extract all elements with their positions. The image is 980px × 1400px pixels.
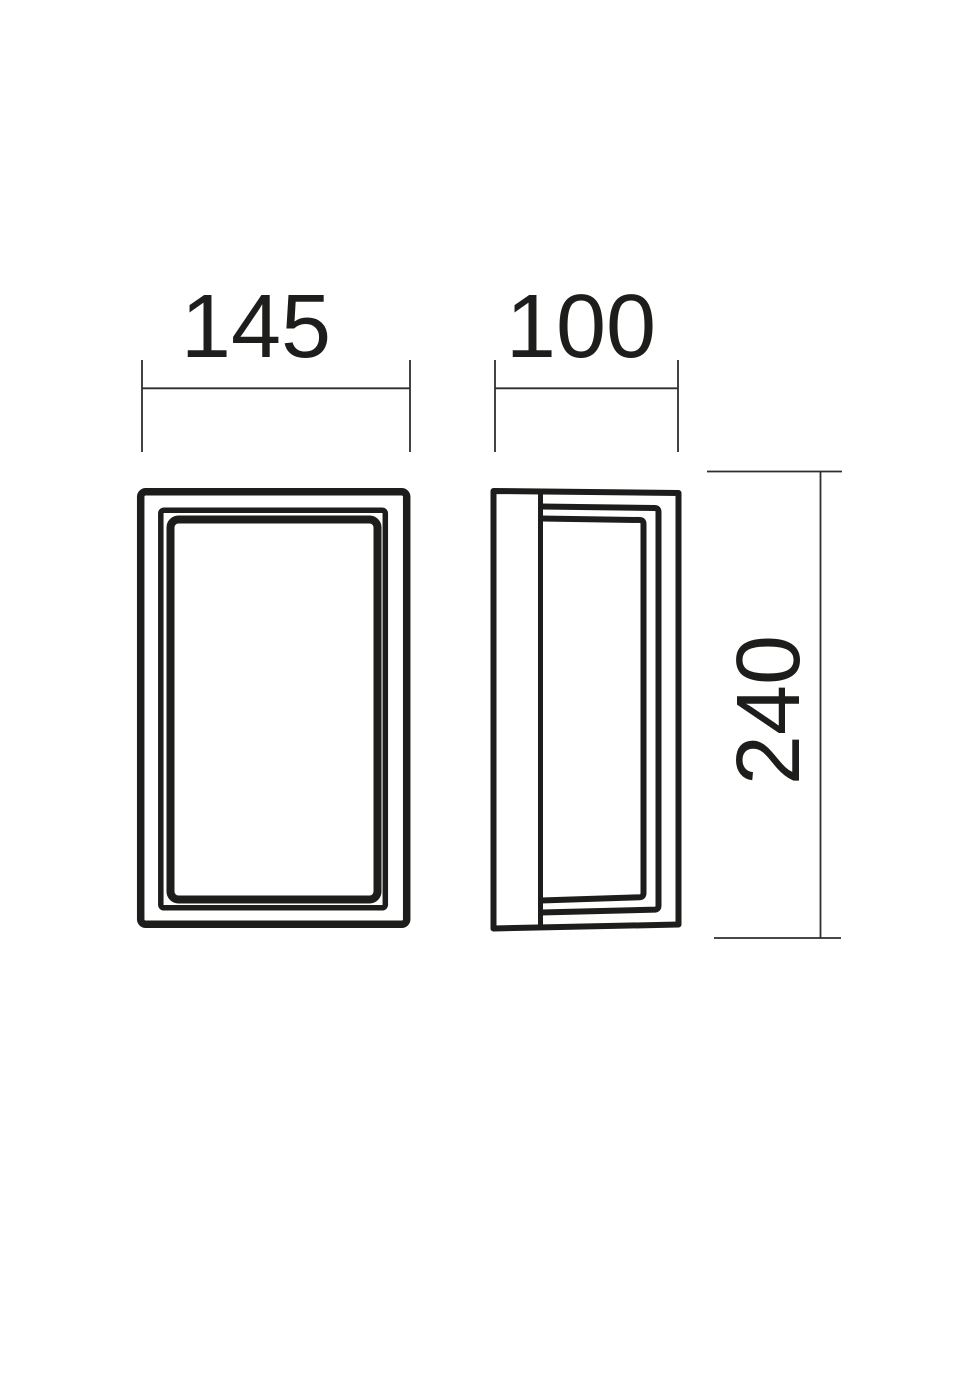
front-outer-frame — [141, 492, 407, 925]
technical-drawing-page: 145 100 240 — [0, 0, 980, 1400]
dimension-height: 240 — [707, 472, 842, 939]
side-outer-profile — [494, 491, 679, 929]
dimension-front-width: 145 — [142, 277, 410, 452]
side-view — [494, 490, 679, 929]
front-inner-frame — [171, 520, 378, 900]
side-inner-frame-profile — [541, 519, 644, 901]
technical-drawing-canvas: 145 100 240 — [0, 0, 980, 1400]
front-middle-frame — [161, 510, 385, 908]
height-dimension-label: 240 — [719, 635, 819, 785]
front-width-dimension-label: 145 — [181, 277, 331, 377]
front-view — [141, 492, 407, 925]
side-depth-dimension-label: 100 — [506, 277, 656, 377]
dimension-side-depth: 100 — [495, 277, 678, 452]
